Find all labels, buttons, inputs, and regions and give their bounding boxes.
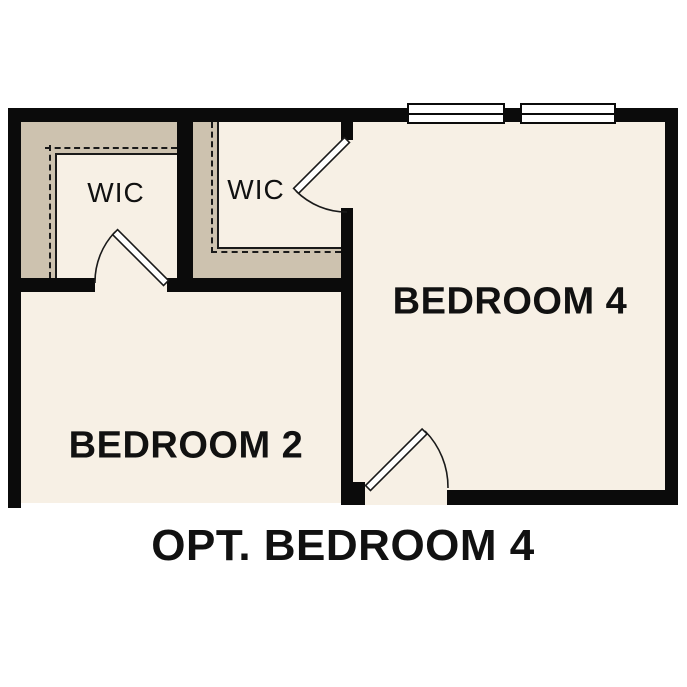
- door-swing-icon: [95, 230, 168, 286]
- door-swing-icon: [366, 429, 448, 491]
- room-label-bedroom4: BEDROOM 4: [393, 281, 628, 324]
- floor-plan: WIC WIC BEDROOM 4 BEDROOM 2 OPT. BEDROOM…: [0, 0, 687, 687]
- room-label-bedroom2: BEDROOM 2: [69, 425, 304, 468]
- door-swing-icon: [294, 138, 350, 212]
- room-label-wic-left: WIC: [87, 177, 144, 209]
- door-symbols-layer: [0, 0, 687, 687]
- plan-caption: OPT. BEDROOM 4: [151, 521, 535, 571]
- room-label-wic-right: WIC: [227, 174, 284, 206]
